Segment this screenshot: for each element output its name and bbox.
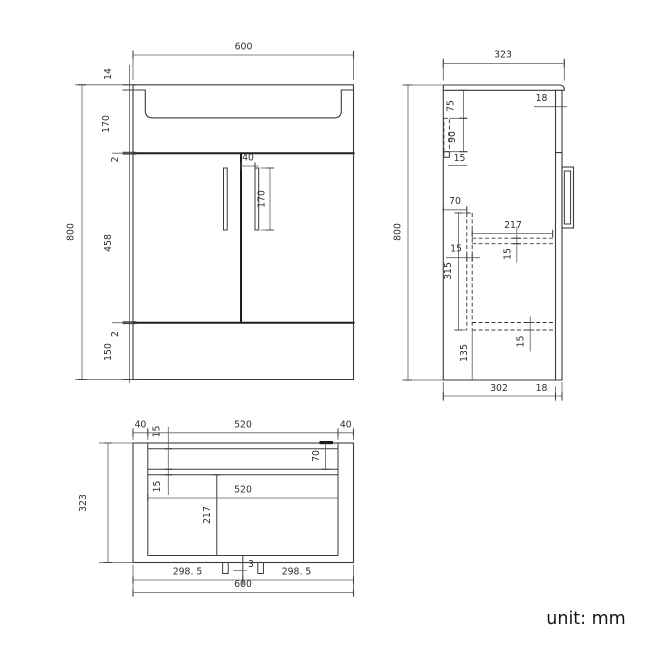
dim-handle-offset: 40 — [242, 153, 254, 164]
dim-plan-right-door: 298. 5 — [282, 567, 312, 578]
dim-plan-right-panel: 40 — [340, 420, 352, 431]
dim-plan-left-door: 298. 5 — [173, 567, 203, 578]
dim-door-thickness-top: 18 — [536, 93, 548, 104]
plan-view-dimensions: 40 520 40 15 15 70 520 217 323 298. 5 3 … — [78, 420, 354, 598]
dim-shelf-depth: 217 — [504, 220, 522, 231]
dim-basin-depth: 170 — [101, 115, 112, 133]
dim-top-gap: 2 — [110, 157, 121, 163]
dim-plinth-height: 150 — [103, 343, 114, 361]
dim-plan-total-width: 600 — [234, 579, 252, 590]
dim-bracket-height: 90 — [447, 131, 458, 143]
front-view-outline — [133, 85, 354, 380]
side-door-handle — [562, 167, 574, 228]
dim-plinth-recess: 135 — [459, 344, 470, 362]
dim-plan-divider-depth: 217 — [202, 506, 213, 524]
vanity-unit-dimension-drawing: 600 800 14 170 2 458 2 150 40 170 — [0, 0, 650, 650]
dim-plan-back-thickness: 15 — [152, 426, 163, 438]
sink-basin-outline — [133, 90, 354, 118]
plan-handle-left — [223, 563, 229, 574]
unit-note: unit: mm — [546, 609, 625, 629]
dim-front-overall-width: 600 — [235, 42, 253, 53]
door-handle-left — [224, 168, 228, 230]
hinge-tick-mark — [320, 441, 334, 444]
dim-door-height: 458 — [103, 234, 114, 252]
dim-plan-total-depth: 323 — [78, 494, 89, 512]
front-view: 600 800 14 170 2 458 2 150 40 170 — [66, 42, 354, 384]
dim-body-depth: 302 — [490, 383, 508, 394]
dim-plan-left-panel: 40 — [134, 420, 146, 431]
side-view-outline — [443, 85, 573, 380]
dim-bottom-thickness: 15 — [516, 336, 527, 348]
plan-handle-right — [258, 563, 264, 574]
dim-plan-rail-thickness: 15 — [152, 481, 163, 493]
dim-side-overall-height: 800 — [393, 223, 404, 241]
plan-view: 40 520 40 15 15 70 520 217 323 298. 5 3 … — [78, 420, 354, 598]
dim-bottom-gap: 2 — [110, 331, 121, 337]
dim-rail-depth: 70 — [449, 196, 461, 207]
dim-side-overall-depth: 323 — [494, 50, 512, 61]
side-view: 323 800 18 75 90 15 70 217 15 15 — [393, 50, 574, 402]
countertop-profile — [443, 85, 564, 90]
side-view-dimensions: 323 800 18 75 90 15 70 217 15 15 — [393, 50, 568, 402]
dim-plan-center-gap: 3 — [248, 559, 254, 570]
dim-bracket-offset: 75 — [446, 100, 457, 112]
dim-door-thickness-bottom: 18 — [536, 383, 548, 394]
front-view-dimensions: 600 800 14 170 2 458 2 150 40 170 — [66, 42, 354, 384]
dim-plan-back-opening: 520 — [234, 420, 252, 431]
dim-bracket-plate: 15 — [454, 153, 466, 164]
dim-plan-opening-width: 520 — [234, 485, 252, 496]
dim-panel-thickness: 15 — [450, 244, 462, 255]
dim-front-overall-height: 800 — [66, 223, 77, 241]
dim-handle-length: 170 — [257, 190, 268, 208]
technical-drawing-page: 600 800 14 170 2 458 2 150 40 170 — [0, 0, 650, 650]
hidden-shelf — [472, 238, 555, 244]
dim-panel-height: 315 — [443, 262, 454, 280]
dim-shelf-thickness: 15 — [503, 248, 514, 260]
dim-plan-rail-depth: 70 — [311, 450, 322, 462]
dim-counter-thickness: 14 — [103, 68, 114, 80]
hidden-bottom-board — [472, 323, 555, 331]
